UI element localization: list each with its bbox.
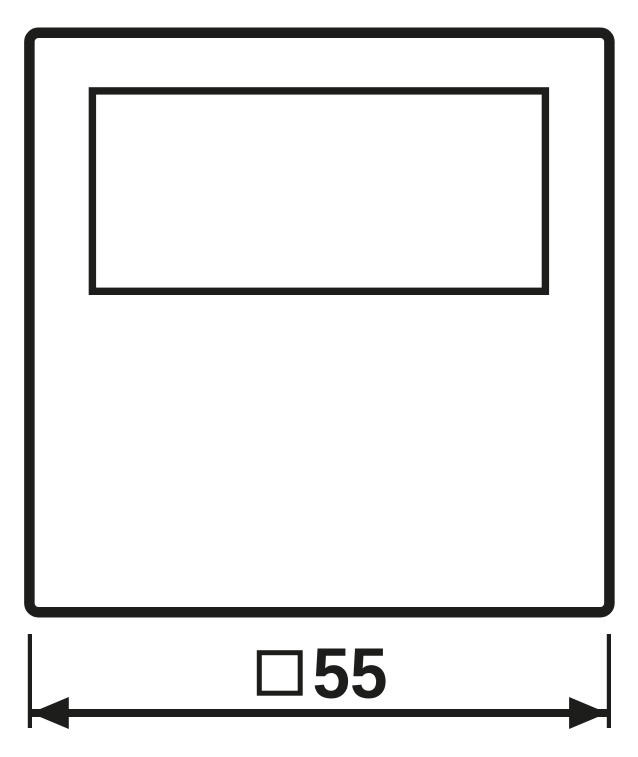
svg-text:55: 55 (313, 635, 388, 714)
